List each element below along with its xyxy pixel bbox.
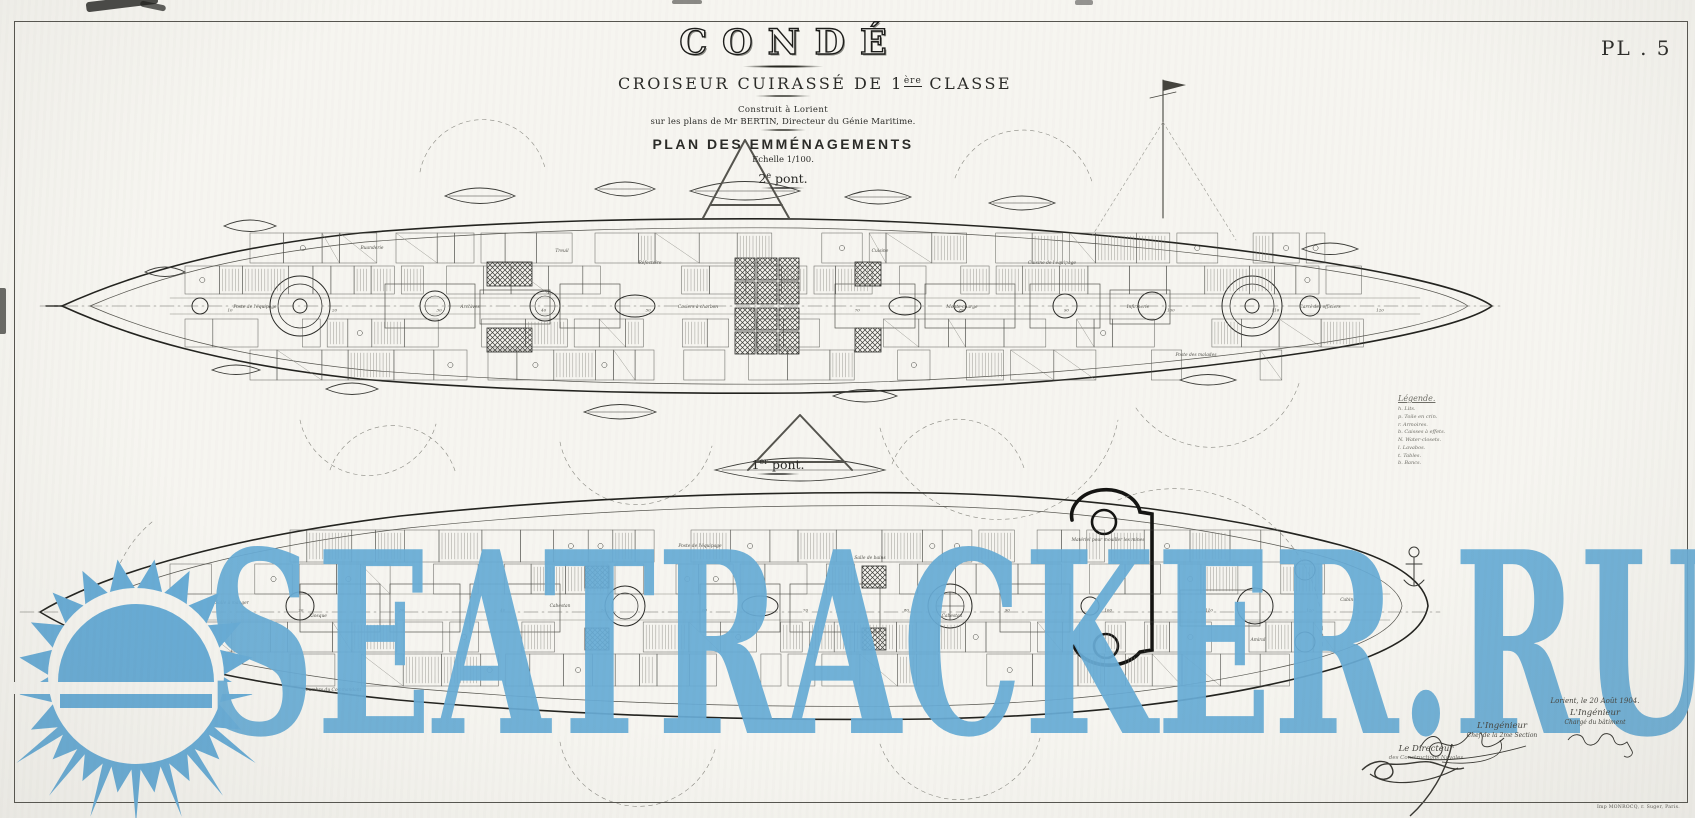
built-line: Construit à Lorient [618, 105, 948, 115]
compartment-detail [639, 233, 656, 263]
compartment-detail [442, 654, 481, 686]
compartment-detail [640, 654, 657, 686]
compartment-detail [1221, 654, 1261, 686]
deck-micro-label: 10 [197, 608, 203, 613]
compartment-detail [720, 622, 756, 652]
legend-item: h. Lits. [1398, 406, 1468, 414]
compartment-detail [401, 266, 423, 294]
compartment-detail [814, 266, 836, 294]
compartment-detail [740, 564, 765, 594]
compartment-detail [919, 319, 949, 347]
compartment-detail [899, 564, 917, 594]
compartment-detail [1152, 654, 1182, 686]
compartment-detail [588, 530, 613, 562]
compartment-detail [1101, 330, 1106, 335]
compartment-detail [942, 530, 972, 562]
compartment-detail [255, 564, 292, 594]
plan-title: PLAN DES EMMÉNAGEMENTS [618, 136, 948, 152]
compartment-detail [348, 350, 394, 380]
compartment-detail [1112, 319, 1154, 347]
compartment-detail [599, 319, 625, 347]
section-subtitle: Chef de la 2me Section [1446, 732, 1558, 739]
compartment-detail [170, 622, 187, 652]
compartment-detail [1070, 233, 1096, 263]
compartment-detail [643, 622, 689, 652]
compartment-detail [331, 266, 354, 294]
deck-micro-label: 20 [331, 308, 338, 313]
legend-item: l. Lavabos. [1398, 445, 1468, 453]
compartment-detail [506, 654, 530, 686]
compartment-detail [787, 350, 830, 380]
compartment-detail [917, 654, 939, 686]
deck-micro-label: 70 [855, 308, 861, 313]
compartment-detail [869, 233, 886, 263]
legend-items: h. Lits.p. Toile en crin.r. Armoires.b. … [1398, 406, 1468, 468]
compartment-detail [1182, 654, 1221, 686]
ship-type-line: CROISEUR CUIRASSÉ DE 1ère CLASSE [618, 74, 948, 93]
compartment-detail [290, 654, 335, 686]
compartment-detail [676, 564, 699, 594]
deck-micro-label: 10 [227, 308, 233, 313]
compartment-detail [900, 266, 927, 294]
title-block: CONDÉ CROISEUR CUIRASSÉ DE 1ère CLASSE C… [618, 22, 948, 189]
compartment-detail [788, 654, 815, 686]
deck-micro-label: 80 [904, 608, 910, 613]
compartment-detail [1007, 667, 1012, 672]
compartment-detail [707, 319, 729, 347]
compartment-detail [682, 266, 710, 294]
deck-label-upper: 2e pont. [618, 171, 948, 186]
compartment-detail [530, 654, 564, 686]
deck-micro-label: Infirmerie [1126, 305, 1150, 310]
legend-item: b. Bancs. [1398, 460, 1468, 468]
compartment-detail [333, 622, 352, 652]
deck-micro-label: 100 [1167, 308, 1175, 313]
deck-label-lower: 1er pont. [740, 457, 816, 475]
deck-micro-label: Cuisine [872, 249, 889, 254]
compartment-detail [322, 233, 339, 263]
compartment-detail [375, 530, 404, 562]
compartment-detail [1242, 319, 1280, 347]
plate-number: PL . 5 [1601, 36, 1672, 60]
compartment-detail [822, 233, 862, 263]
compartment-detail [288, 622, 333, 652]
compartment-detail [1296, 266, 1319, 294]
compartment-detail [1201, 564, 1238, 594]
compartment-detail [761, 654, 781, 686]
deck-micro-label: Archives [459, 305, 480, 310]
compartment-detail [439, 530, 482, 562]
deck-upper-word: pont. [771, 171, 808, 186]
ornament-rule [755, 95, 811, 97]
compartment-detail [932, 233, 967, 263]
legend-block: Légende. h. Lits.p. Toile en crin.r. Arm… [1398, 394, 1468, 468]
compartment-detail [822, 654, 860, 686]
compartment-detail [194, 622, 232, 652]
compartment-detail [361, 654, 403, 686]
compartment-detail [976, 564, 1018, 594]
compartment-detail [1249, 622, 1266, 652]
compartment-detail [1326, 266, 1361, 294]
deck-micro-label: Kiosque [308, 614, 327, 619]
compartment-detail [996, 266, 1023, 294]
compartment-detail [685, 576, 690, 581]
compartment-detail [839, 245, 844, 250]
deck-micro-label: 40 [499, 608, 506, 613]
compartment-detail [522, 622, 555, 652]
compartment-detail [749, 350, 788, 380]
compartment-detail [348, 319, 372, 347]
compartment-detail [481, 654, 499, 686]
compartment-detail [354, 266, 371, 294]
compartment-detail [973, 634, 978, 639]
compartment-detail [271, 576, 276, 581]
compartment-detail [593, 654, 616, 686]
compartment-detail [1284, 245, 1289, 250]
compartment-detail [1305, 277, 1310, 282]
compartment-detail [736, 634, 741, 639]
deck-micro-label: Poste de l'équipage [232, 305, 277, 310]
deck-micro-label: 50 [646, 308, 652, 313]
compartment-detail [450, 622, 479, 652]
compartment-detail [781, 622, 803, 652]
compartment-detail [1188, 634, 1193, 639]
compartment-detail [966, 319, 1004, 347]
compartment-detail [954, 543, 959, 548]
compartment-detail [1180, 564, 1201, 594]
compartment-detail [299, 564, 336, 594]
legend-item: p. Toile en crin. [1398, 414, 1468, 422]
deck-micro-label: 20 [297, 608, 304, 613]
compartment-detail [549, 266, 583, 294]
legend-item: b. Caisses à effets. [1398, 429, 1468, 437]
legend-item: t. Tables. [1398, 453, 1468, 461]
compartment-detail [595, 233, 639, 263]
compartment-detail [1313, 622, 1335, 652]
deck-micro-label: Matériel pour mouiller les mines [1071, 538, 1146, 543]
compartment-detail [883, 319, 918, 347]
compartment-detail [615, 564, 643, 594]
deck-micro-label: Treuil [555, 249, 569, 254]
compartment-detail [447, 266, 484, 294]
deck-micro-label: 70 [803, 608, 809, 613]
deck-micro-label: 30 [437, 308, 443, 313]
compartment-detail [357, 330, 362, 335]
signature-block-section-chief: L'Ingénieur Chef de la 2me Section [1446, 721, 1558, 739]
compartment-detail [1023, 266, 1060, 294]
compartment-detail [1167, 266, 1205, 294]
legend-item: N. Water-closets. [1398, 437, 1468, 445]
compartment-detail [504, 564, 531, 594]
signature-date: Lorient, le 20 Août 1904. [1528, 697, 1662, 705]
compartment-detail [765, 564, 807, 594]
compartment-detail [170, 564, 211, 594]
deck-micro-label: Chambre du Commandant [303, 688, 362, 693]
compartment-detail [826, 564, 854, 594]
compartment-detail [537, 233, 573, 263]
deck-micro-label: Monte-charge [945, 305, 978, 310]
compartment-detail [1306, 233, 1325, 263]
compartment-detail [185, 266, 220, 294]
compartment-detail [271, 622, 288, 652]
compartment-detail [602, 362, 607, 367]
deck-micro-label: Poste de l'équipage [677, 544, 722, 549]
compartment-detail [635, 530, 654, 562]
compartment-detail [930, 543, 935, 548]
deck-micro-label: Cabestan [550, 604, 571, 609]
deck-micro-label: Cuisine de l'équipage [1028, 261, 1076, 266]
compartment-detail [232, 622, 271, 652]
compartment-detail [918, 564, 956, 594]
compartment-detail [1313, 245, 1318, 250]
compartment-detail [576, 667, 581, 672]
compartment-detail [956, 564, 977, 594]
compartment-detail [1033, 654, 1078, 686]
compartment-detail [455, 233, 475, 263]
compartment-detail [554, 530, 589, 562]
compartment-detail [583, 266, 601, 294]
compartment-detail [655, 233, 699, 263]
deck-micro-label: Buanderie [359, 246, 383, 251]
ship-type-pre: CROISEUR CUIRASSÉ DE 1 [618, 74, 904, 93]
compartment-detail [595, 350, 613, 380]
compartment-detail [965, 622, 986, 652]
compartment-detail [1260, 350, 1282, 380]
compartment-detail [403, 654, 441, 686]
ship-name: CONDÉ [618, 22, 948, 63]
compartment-detail [1077, 319, 1094, 347]
compartment-detail [961, 266, 989, 294]
compartment-detail [394, 350, 434, 380]
compartment-detail [1291, 622, 1313, 652]
deck-micro-label: Commandant [190, 654, 220, 659]
compartment-detail [916, 622, 938, 652]
compartment-detail [684, 350, 725, 380]
compartment-detail [635, 350, 654, 380]
compartment-detail [448, 362, 453, 367]
compartment-detail [699, 564, 734, 594]
compartment-detail [1230, 530, 1261, 562]
director-subtitle: des Constructions Navales [1378, 755, 1474, 761]
ornament-rule [760, 129, 806, 131]
compartment-detail [517, 350, 554, 380]
deck-micro-label: 30 [399, 608, 405, 613]
compartment-detail [564, 654, 593, 686]
deck-micro-label: 40 [540, 308, 547, 313]
compartment-detail [830, 350, 854, 380]
compartment-detail [1261, 530, 1281, 562]
compartment-detail [626, 319, 644, 347]
compartment-detail [1125, 564, 1160, 594]
compartment-detail [200, 277, 205, 282]
compartment-detail [1281, 564, 1325, 594]
compartment-detail [1054, 350, 1096, 380]
deck-micro-label: 120 [1306, 608, 1314, 613]
compartment-detail [1195, 245, 1200, 250]
deck-micro-label: 100 [1104, 608, 1112, 613]
lower-deck-plan: 102030405060708090100110120 Salle à mang… [20, 419, 1440, 806]
compartment-detail [372, 319, 405, 347]
compartment-detail [487, 667, 492, 672]
compartment-detail [185, 319, 213, 347]
director-title: Le Directeur [1378, 744, 1474, 754]
legend-heading: Légende. [1398, 394, 1468, 403]
compartment-detail [404, 530, 439, 562]
compartment-detail [886, 233, 932, 263]
compartment-detail [690, 654, 717, 686]
compartment-detail [948, 319, 965, 347]
ornament-rule [743, 65, 823, 68]
compartment-detail [302, 319, 320, 347]
deck-micro-label: Casiers à charbon [678, 305, 718, 310]
compartment-detail [1062, 622, 1079, 652]
compartment-detail [574, 319, 599, 347]
deck-micro-label: Cabestan [942, 614, 963, 619]
scale-line: Echelle 1/100. [618, 155, 948, 165]
deck-micro-label: 110 [1205, 608, 1213, 613]
engineer-title: L'Ingénieur [1528, 708, 1662, 718]
compartment-detail [1090, 564, 1125, 594]
ship-type-post: CLASSE [922, 74, 1012, 93]
printer-imprint: Imp MONROCQ, r. Suger, Paris. [1556, 805, 1680, 810]
blueprint-plate: 102030405060708090100110120 Poste de l'é… [0, 0, 1695, 818]
compartment-detail [288, 266, 313, 294]
compartment-detail [770, 530, 798, 562]
deck-micro-label: Réfectoire [637, 261, 661, 266]
deck-micro-label: 60 [750, 308, 756, 313]
compartment-detail [360, 564, 390, 594]
compartment-detail [911, 362, 916, 367]
deck-micro-label: 90 [1005, 608, 1011, 613]
deck-lower-word: pont. [768, 457, 805, 472]
compartment-detail [1112, 530, 1145, 562]
ornament-rule [757, 473, 799, 475]
deck-micro-label: 120 [1376, 308, 1384, 313]
compartment-detail [699, 233, 737, 263]
compartment-detail [405, 319, 439, 347]
compartment-detail [1032, 233, 1063, 263]
compartment-detail [1279, 319, 1321, 347]
deck-micro-label: Salle à manger [215, 601, 249, 606]
compartment-detail [482, 530, 521, 562]
compartment-detail [860, 654, 897, 686]
deck-micro-label: Carré des officiers [1299, 305, 1341, 310]
compartment-detail [979, 530, 1015, 562]
compartment-detail [657, 654, 689, 686]
compartment-detail [689, 622, 720, 652]
compartment-detail [505, 233, 536, 263]
compartment-detail [434, 564, 479, 594]
compartment-detail [220, 266, 243, 294]
compartment-detail [1018, 564, 1062, 594]
compartment-detail [1188, 576, 1193, 581]
compartment-detail [404, 622, 443, 652]
section-title: L'Ingénieur [1446, 721, 1558, 731]
compartment-detail [898, 350, 930, 380]
deck-micro-label: 90 [1064, 308, 1070, 313]
compartment-detail [1011, 350, 1054, 380]
compartment-detail [488, 350, 517, 380]
compartment-detail [598, 543, 603, 548]
compartment-detail [243, 266, 289, 294]
compartment-detail [437, 233, 454, 263]
compartment-detail [748, 543, 753, 548]
compartment-detail [1177, 233, 1218, 263]
compartment-detail [614, 350, 636, 380]
deck-micro-label: 50 [601, 608, 607, 613]
signature-block-director: Le Directeur des Constructions Navales [1378, 744, 1474, 761]
compartment-detail [1169, 622, 1211, 652]
compartment-detail [986, 622, 1030, 652]
compartment-detail [730, 530, 770, 562]
deck-lower-sup: er [759, 457, 768, 466]
deck-micro-label: Salle de bains [854, 556, 886, 561]
compartment-detail [922, 530, 942, 562]
compartment-detail [213, 319, 258, 347]
compartment-detail [462, 634, 467, 639]
deck-micro-label: 60 [702, 608, 708, 613]
compartment-detail [568, 543, 573, 548]
compartment-detail [290, 530, 307, 562]
compartment-detail [533, 362, 538, 367]
ship-type-sup: ère [904, 76, 922, 87]
compartment-detail [1037, 622, 1062, 652]
compartment-detail [1059, 266, 1088, 294]
compartment-detail [521, 530, 554, 562]
compartment-detail [481, 233, 505, 263]
ornament-rule [762, 187, 804, 189]
compartment-detail [371, 266, 394, 294]
compartment-detail [1037, 530, 1061, 562]
deck-micro-label: Cabine [1340, 598, 1356, 603]
compartment-detail [713, 576, 718, 581]
compartment-detail [615, 654, 639, 686]
compartment-detail [1004, 319, 1046, 347]
deck-micro-label: 110 [1272, 308, 1280, 313]
compartment-detail [1165, 543, 1170, 548]
compartment-detail [346, 576, 351, 581]
compartment-detail [337, 564, 361, 594]
compartment-detail [277, 350, 322, 380]
compartment-detail [996, 233, 1032, 263]
deck-micro-label: Amiral [1250, 638, 1266, 643]
compartment-detail [1062, 530, 1080, 562]
compartment-detail [987, 654, 1033, 686]
deck-micro-label: Poste des malades [1175, 353, 1218, 358]
plans-line: sur les plans de Mr BERTIN, Directeur du… [618, 117, 948, 127]
